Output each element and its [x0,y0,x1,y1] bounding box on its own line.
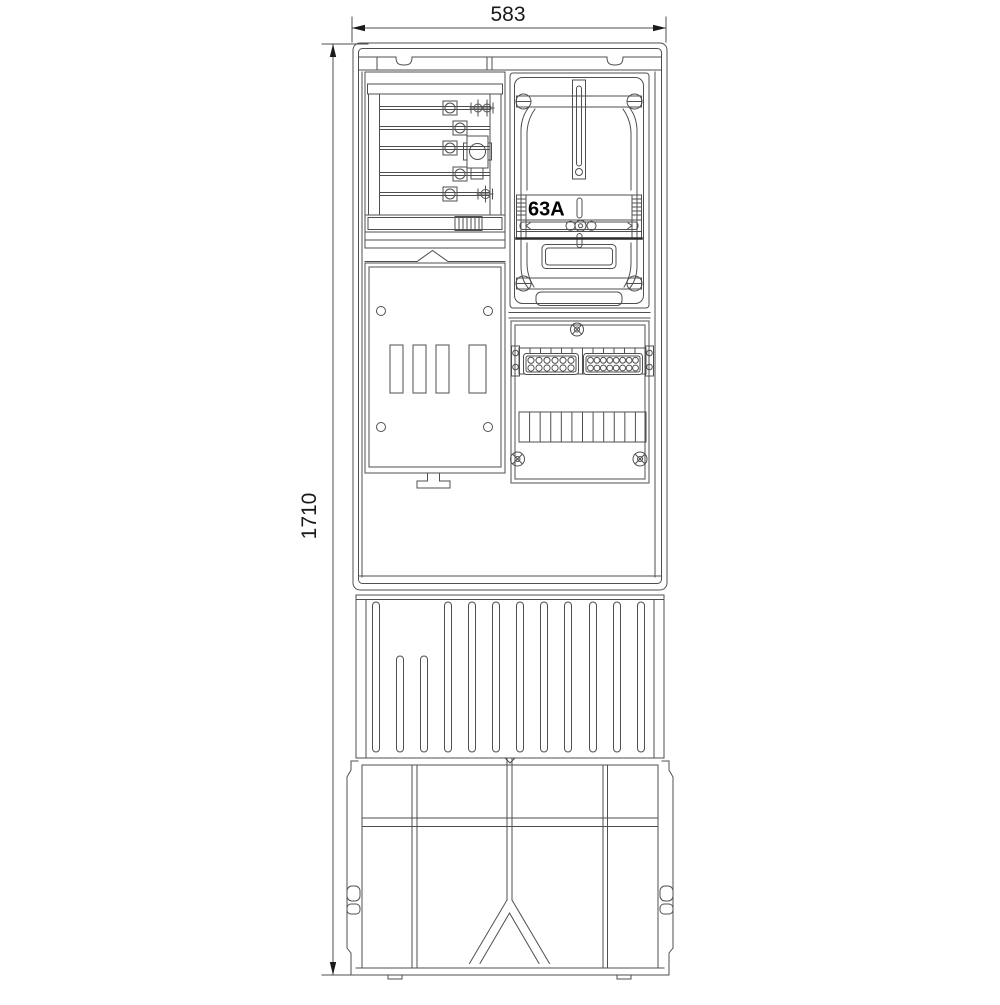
terminal-panel-frame [511,321,649,483]
mounting-hole [484,423,493,432]
fuse-terminal-3 [443,141,457,155]
base-foot-left [388,975,402,979]
meter-rail-band: 63A [517,195,642,248]
mounting-hole [377,423,386,432]
meter-rating-label: 63A [528,199,565,221]
base-foot-right [617,975,631,979]
meter-label-window [542,245,616,269]
base-profile-right [662,761,673,975]
top-notch-right [607,57,623,65]
base-section [347,758,673,979]
hatch-block-stripes [459,217,479,230]
dimension-width: 583 [352,3,666,42]
cable-clamp-bottom [477,186,493,202]
fuse-terminal-2 [453,121,467,135]
terminal-panel [511,321,654,483]
base-profile-left [347,761,358,975]
cable-cover [356,595,664,763]
fuse-terminal-4 [453,167,467,181]
mounting-foot [417,473,450,488]
fuse-section-frame [365,72,505,248]
drawing-canvas: 63A [0,0,1000,1000]
din-rail-marker [455,217,482,231]
arrowhead-right-icon [653,25,666,31]
breaker-panel [365,263,505,488]
meter-plate-contour-right [629,107,637,289]
dimension-height: 1710 [298,44,368,975]
mounting-hole [484,307,493,316]
cover-ribs [373,602,645,752]
breaker-slots [390,345,486,393]
arrowhead-bottom-icon [330,962,336,975]
terminal-group-1 [524,354,579,375]
meter-cabinet-drawing: 63A [0,0,1000,1000]
arrowhead-top-icon [330,44,336,57]
fuse-terminal-1 [443,101,457,115]
mounting-hole [377,307,386,316]
fuse-rails [380,107,490,196]
meter-section: 63A [509,73,650,318]
base-brace-triangle [470,900,550,964]
top-notch-left [396,57,412,65]
meter-section-frame [510,73,649,308]
meter-bottom-bar [517,278,642,289]
panel-screw-bottom-left-icon [511,452,525,466]
fuse-section [365,72,505,262]
cable-cover-outline [356,595,664,758]
base-grid [362,758,658,968]
fuse-left-rail [369,94,380,215]
arrowhead-left-icon [352,25,365,31]
meter-top-bar [517,96,642,107]
meter-vertical-slot [573,80,586,179]
base-clip-left [347,886,360,914]
fuse-terminal-5 [443,187,457,201]
height-dimension-label: 1710 [298,493,321,540]
comb-dividers [530,412,636,442]
fuse-top-bar [368,84,503,94]
breaker-panel-frame [365,263,505,473]
base-clip-right [660,886,673,914]
width-dimension-label: 583 [490,3,525,26]
latch-chevron [417,251,448,262]
terminal-group-2 [584,354,643,375]
